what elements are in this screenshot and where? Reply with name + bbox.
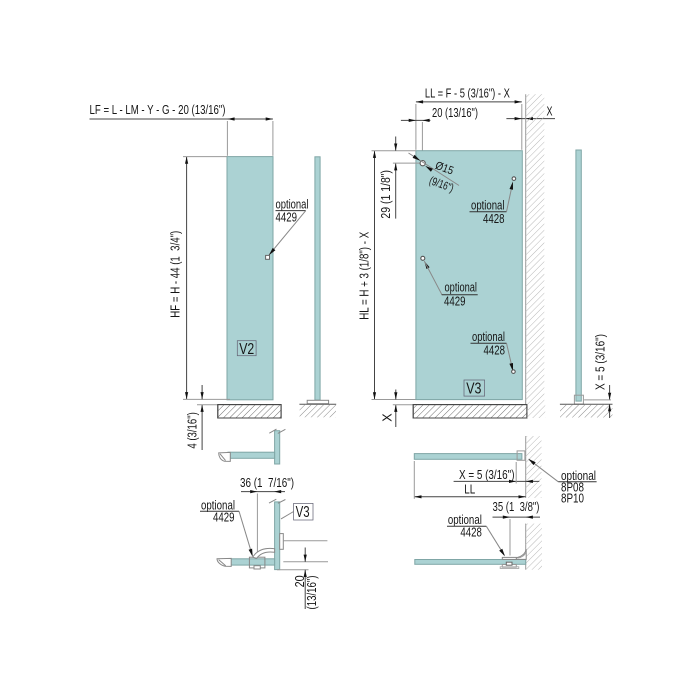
svg-text:4428: 4428 [483,212,505,226]
svg-text:X: X [547,104,553,118]
svg-text:HL = H + 3 (1/8") - X: HL = H + 3 (1/8") - X [357,231,371,320]
svg-text:4429: 4429 [276,210,298,224]
svg-text:29 (1 1/8"): 29 (1 1/8") [379,170,393,219]
svg-text:4 (3/16"): 4 (3/16") [185,412,199,449]
svg-text:4428: 4428 [484,343,506,357]
svg-text:LL: LL [464,483,475,497]
svg-text:HF = H - 44 (1 3/4"): HF = H - 44 (1 3/4") [169,231,183,318]
svg-text:20 (13/16"): 20 (13/16") [432,106,478,120]
svg-text:X = 5 (3/16"): X = 5 (3/16") [594,334,608,390]
svg-text:35 (1 3/8"): 35 (1 3/8") [493,500,540,514]
svg-text:optional: optional [471,198,505,212]
svg-text:V2: V2 [239,341,254,358]
svg-text:36 (1 7/16"): 36 (1 7/16") [240,476,294,490]
svg-text:LL = F - 5 (3/16") - X: LL = F - 5 (3/16") - X [425,86,510,100]
svg-text:optional: optional [472,330,505,344]
svg-text:X = 5 (3/16"): X = 5 (3/16") [459,468,515,482]
svg-text:X: X [380,413,394,422]
svg-text:V3: V3 [296,504,310,521]
svg-text:4429: 4429 [444,294,466,308]
svg-text:LF = L - LM - Y - G - 20 (13/1: LF = L - LM - Y - G - 20 (13/16") [90,103,226,117]
svg-text:8P10: 8P10 [561,492,584,506]
svg-text:V3: V3 [466,380,481,397]
svg-text:4429: 4429 [213,511,235,525]
svg-text:optional: optional [445,280,478,294]
svg-text:4428: 4428 [460,526,482,540]
svg-text:(13/16"): (13/16") [305,576,319,610]
